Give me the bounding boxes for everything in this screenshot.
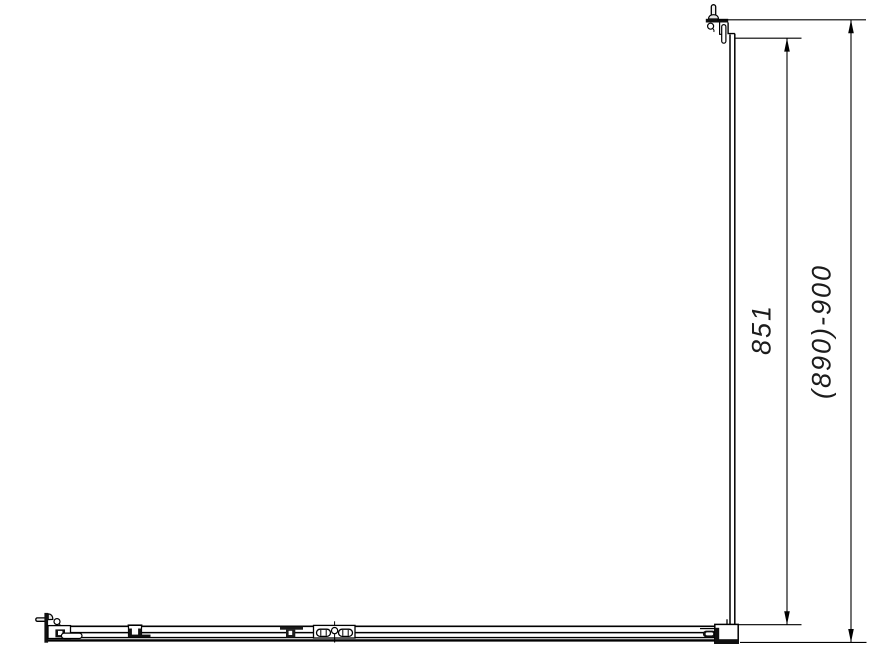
bracket-slot	[722, 25, 726, 44]
clamp-base	[128, 635, 151, 638]
bracket-profile-outline	[728, 23, 735, 34]
bracket-knob	[711, 5, 715, 16]
arrow-down-icon	[848, 629, 854, 642]
technical-drawing-canvas: 851 (890)-900	[0, 0, 873, 659]
dimension-label-outer: (890)-900	[807, 264, 837, 399]
arrow-up-icon	[784, 38, 790, 51]
plate-slot	[339, 629, 353, 636]
arrow-up-icon	[848, 20, 854, 33]
bracket-notch	[289, 631, 293, 635]
plate-screw	[332, 628, 338, 634]
bottom-rail-profile	[46, 626, 716, 640]
bracket-slot	[61, 633, 82, 638]
bracket-bar	[280, 627, 303, 630]
bracket-washer	[48, 614, 53, 620]
dimension-outer: (890)-900	[807, 20, 854, 643]
dimension-inner: 851	[747, 38, 790, 625]
bracket-screw-tail	[713, 28, 714, 32]
technical-drawing-page: 851 (890)-900	[0, 0, 873, 659]
plate-slot	[317, 629, 331, 636]
dimension-extension-lines	[717, 20, 867, 643]
connector-pill-inner	[706, 632, 714, 635]
right-glass-panel	[730, 34, 735, 625]
bracket-washer	[709, 15, 719, 19]
connector-bottom-wall	[715, 639, 738, 643]
arrow-down-icon	[784, 611, 790, 624]
left-wall-bracket	[36, 613, 82, 643]
dimension-label-inner: 851	[747, 304, 777, 355]
